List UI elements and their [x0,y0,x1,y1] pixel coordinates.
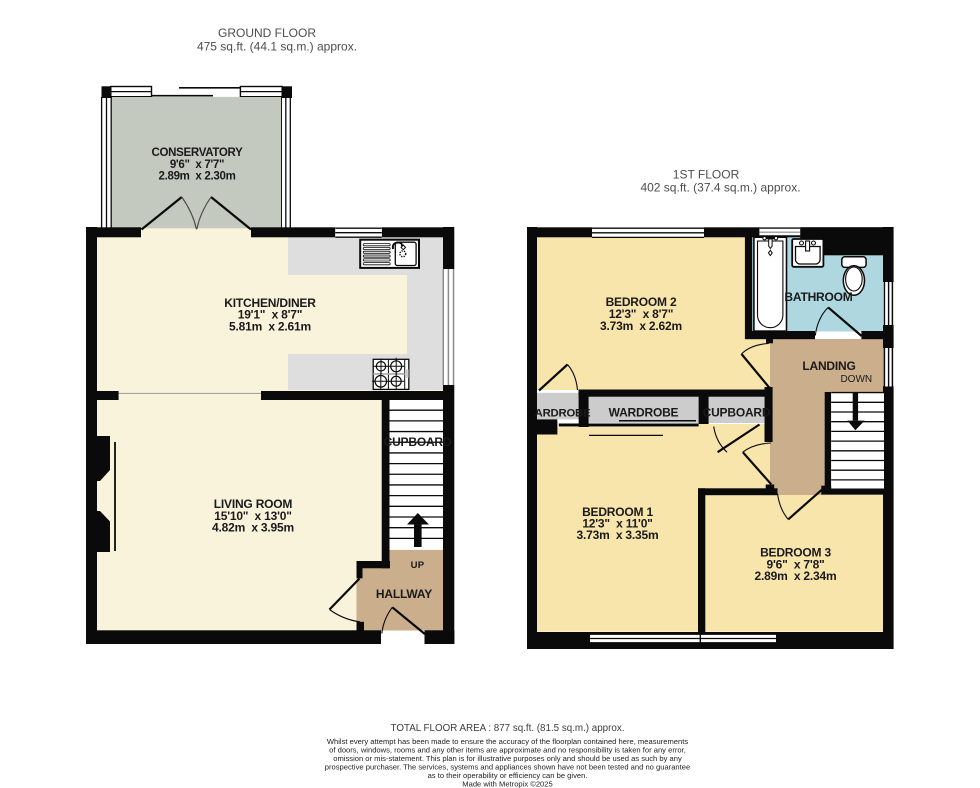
svg-text:ARDROBE: ARDROBE [535,407,591,419]
svg-text:WARDROBE: WARDROBE [609,406,679,420]
svg-text:CUPBOARD: CUPBOARD [384,435,452,449]
svg-text:DOWN: DOWN [840,374,872,385]
svg-text:2.89m x 2.30m: 2.89m x 2.30m [159,171,236,183]
svg-text:1ST FLOOR: 1ST FLOOR [673,168,740,182]
svg-text:TOTAL FLOOR AREA : 877 sq.ft.: TOTAL FLOOR AREA : 877 sq.ft. (81.5 sq.m… [391,723,625,734]
svg-text:CUPBOARD: CUPBOARD [703,406,771,420]
svg-text:CONSERVATORY: CONSERVATORY [152,147,244,159]
svg-text:402 sq.ft. (37.4 sq.m.) approx: 402 sq.ft. (37.4 sq.m.) approx. [640,181,800,195]
svg-text:2.89m x 2.34m: 2.89m x 2.34m [755,569,837,583]
svg-text:HALLWAY: HALLWAY [376,587,432,601]
svg-text:4.82m x 3.95m: 4.82m x 3.95m [212,521,294,535]
svg-text:GROUND FLOOR: GROUND FLOOR [218,26,316,40]
svg-text:475 sq.ft. (44.1 sq.m.) approx: 475 sq.ft. (44.1 sq.m.) approx. [197,40,357,54]
svg-text:Made with Metropix ©2025: Made with Metropix ©2025 [462,780,552,788]
svg-text:UP: UP [411,560,425,571]
svg-text:9'6" x 7'7": 9'6" x 7'7" [170,159,224,171]
svg-text:5.81m x 2.61m: 5.81m x 2.61m [229,319,311,333]
svg-text:3.73m x 2.62m: 3.73m x 2.62m [600,319,682,333]
svg-text:3.73m x 3.35m: 3.73m x 3.35m [577,528,659,542]
svg-text:LANDING: LANDING [802,359,855,373]
svg-text:BATHROOM: BATHROOM [784,290,852,304]
